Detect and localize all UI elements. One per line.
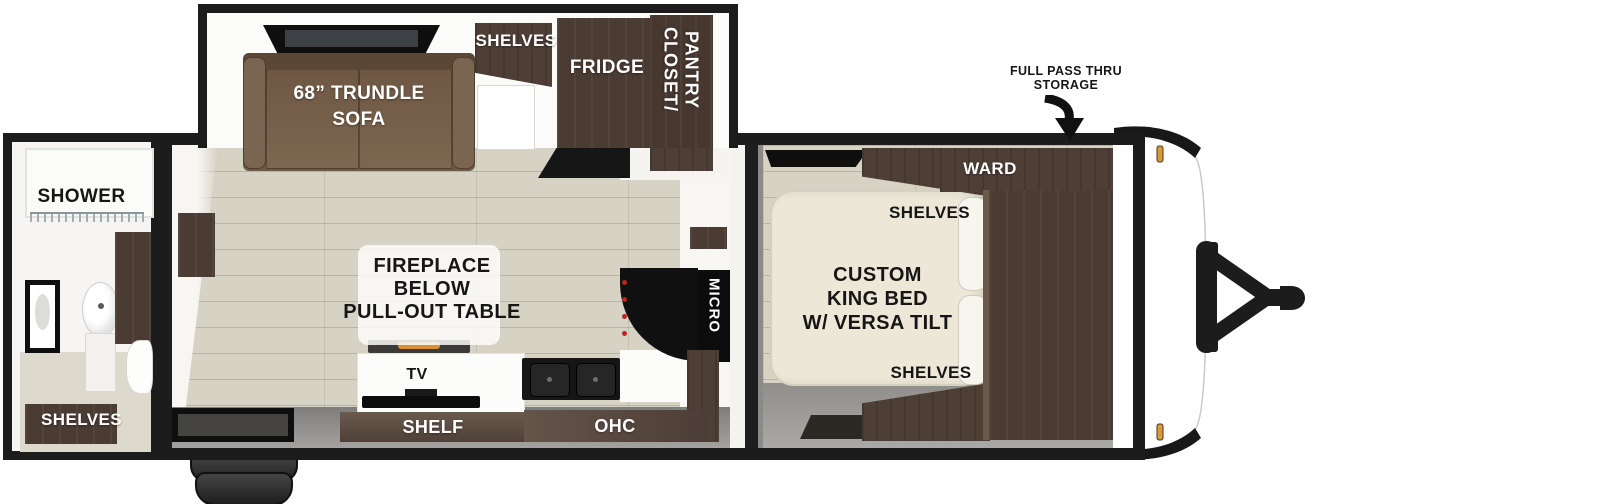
sink-drain — [98, 303, 104, 309]
bathroom: SHOWER SHELVES — [3, 133, 160, 460]
marker-light-top-icon — [1157, 146, 1163, 162]
sink-icon — [82, 282, 119, 337]
pass-thru-storage-line2: STORAGE — [1034, 78, 1098, 92]
front-wall-gap — [1113, 145, 1133, 448]
range-knob-3 — [622, 314, 627, 319]
closet-pantry-label: CLOSET/ PANTRY — [660, 27, 701, 112]
slide-shelves-label: SHELVES — [475, 31, 557, 51]
fireplace-label: FIREPLACE BELOW PULL-OUT TABLE — [332, 255, 532, 324]
range-knob-1 — [622, 280, 627, 285]
sink-drain-right — [593, 377, 598, 382]
range-icon — [620, 268, 698, 361]
trundle-sofa: 68” TRUNDLE SOFA — [243, 53, 475, 171]
closet-pantry: CLOSET/ PANTRY — [650, 15, 713, 148]
bedroom-divider-wall — [730, 145, 763, 448]
micro-label: MICRO — [705, 278, 722, 333]
shower-glass-icon — [30, 212, 144, 222]
marker-light-bottom-icon — [1157, 424, 1163, 440]
pass-thru-storage-line1: FULL PASS THRU — [1010, 64, 1122, 78]
sink-basin-left — [530, 363, 570, 397]
microwave-panel: MICRO — [697, 270, 731, 362]
ward-label: WARD — [930, 159, 1050, 179]
floorplan-page: FULL PASS THRU STORAGE SHOWER SHELVES — [0, 0, 1600, 504]
tv-icon — [362, 396, 480, 408]
ohc-label: OHC — [524, 416, 706, 437]
mirror-icon — [25, 280, 60, 353]
coupler-icon — [1280, 286, 1305, 310]
mirror-reflection — [35, 294, 50, 330]
range-knob-2 — [622, 297, 627, 302]
bathroom-cabinet — [115, 232, 151, 344]
entry-door-mat — [172, 408, 294, 442]
bathroom-shelves-label: SHELVES — [12, 410, 151, 430]
fridge-label: FRIDGE — [557, 57, 657, 79]
closet-pantry-base — [650, 145, 713, 171]
wall-cabinet-small — [690, 227, 727, 249]
bedroom-window-icon — [765, 150, 868, 167]
sofa-backrest — [243, 53, 475, 70]
slide-out-window-glass — [285, 30, 418, 47]
sink-basin-right — [576, 363, 616, 397]
shelf-label: SHELF — [340, 417, 526, 438]
slide-out-window-icon — [263, 25, 440, 53]
trundle-sofa-label: 68” TRUNDLE SOFA — [243, 81, 475, 132]
toilet-icon — [126, 340, 153, 394]
tv-label: TV — [387, 366, 447, 384]
shower-label: SHOWER — [12, 186, 151, 208]
bedroom-shelves-top-label: SHELVES — [872, 203, 987, 223]
range-knob-4 — [622, 331, 627, 336]
sink-pedestal — [85, 333, 116, 392]
entry-step-lower — [195, 472, 293, 504]
pass-thru-storage-label: FULL PASS THRU STORAGE — [996, 64, 1136, 93]
wardrobe-column — [983, 190, 1113, 440]
slide-shelves-open — [477, 85, 535, 150]
storage-arrow-icon — [1040, 95, 1092, 143]
bedroom-shelves-bottom-label: SHELVES — [876, 363, 986, 383]
kitchen-sink-block — [522, 358, 620, 400]
main-body: FIREPLACE BELOW PULL-OUT TABLE TV SHELF — [160, 133, 1145, 460]
king-bed-label: CUSTOM KING BED W/ VERSA TILT — [770, 263, 985, 335]
left-wall-cabinet — [178, 213, 215, 277]
sink-drain-left — [547, 377, 552, 382]
counter-hood — [538, 148, 630, 178]
fridge — [557, 18, 657, 148]
